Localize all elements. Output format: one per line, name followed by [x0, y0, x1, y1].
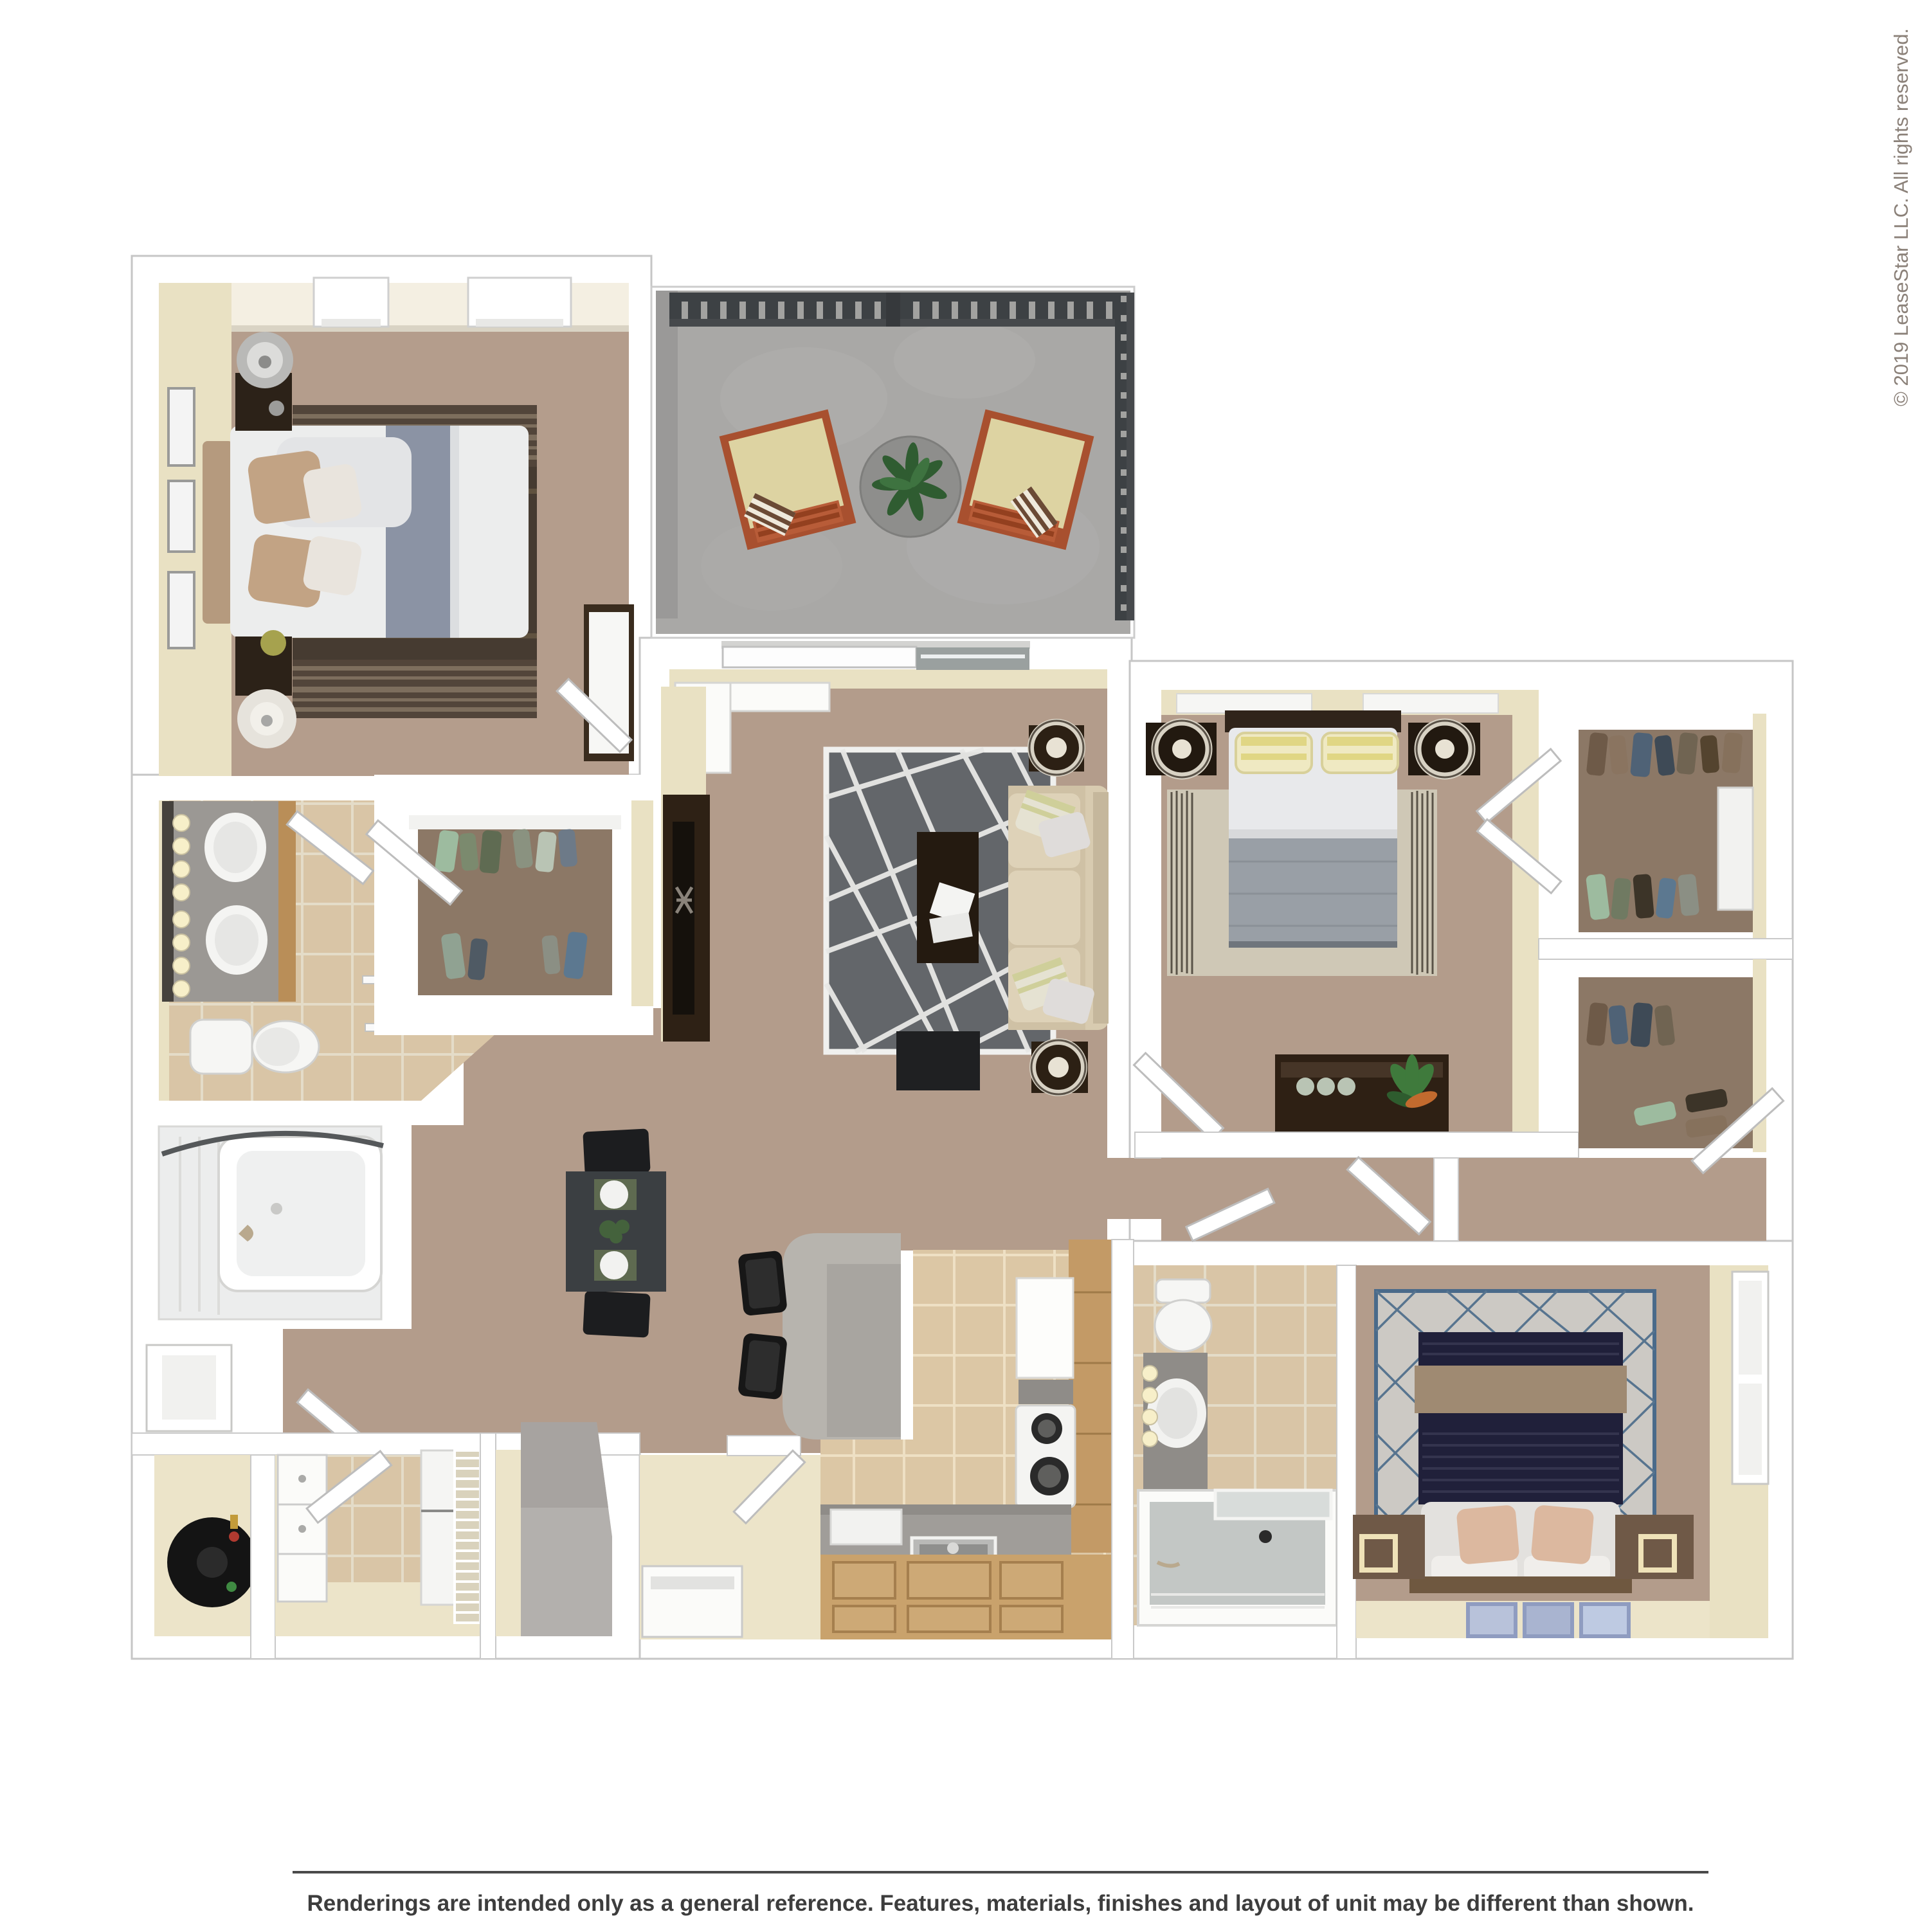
- svg-text:Renderings are intended only a: Renderings are intended only as a genera…: [307, 1891, 1694, 1916]
- svg-text:© 2019 LeaseStar LLC. All righ: © 2019 LeaseStar LLC. All rights reserve…: [1890, 28, 1912, 406]
